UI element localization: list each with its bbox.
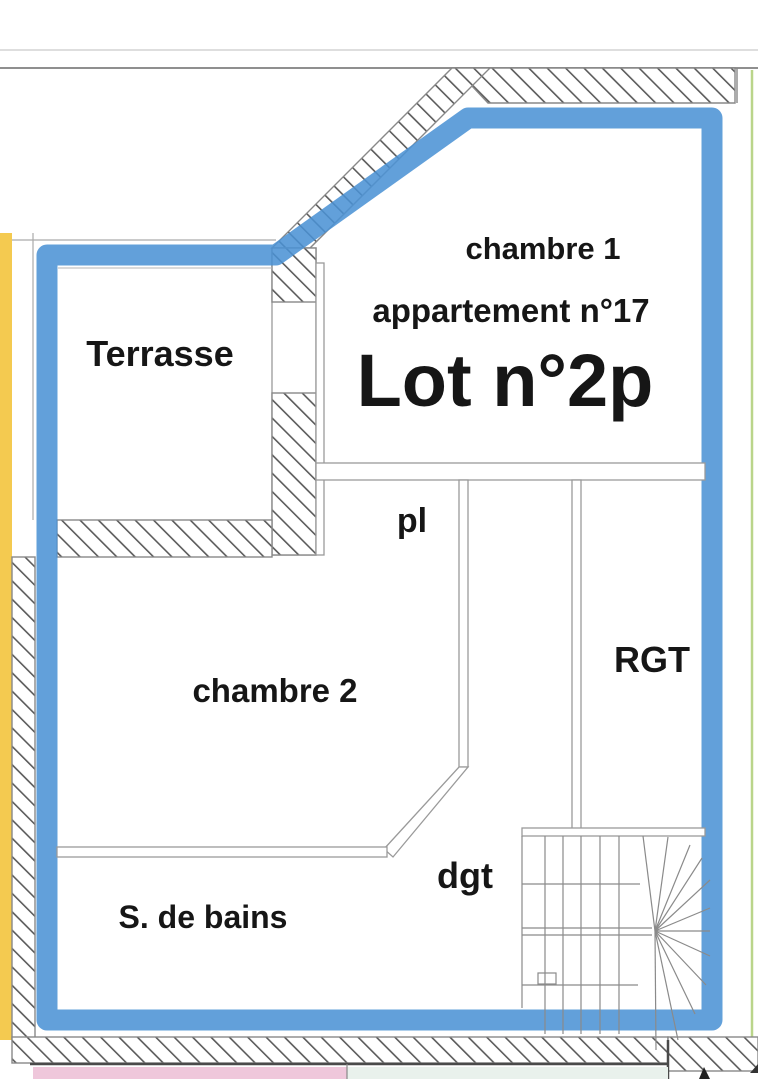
label-terrasse: Terrasse — [86, 333, 233, 374]
label-chambre-2: chambre 2 — [192, 672, 357, 709]
floor-plan-page: chambre 1 appartement n°17 Lot n°2p Terr… — [0, 0, 758, 1079]
label-lot: Lot n°2p — [357, 339, 654, 422]
partition-chambre1-west — [316, 263, 324, 555]
hatched-wall-bottom-right — [668, 1037, 758, 1071]
hatched-wall-top — [455, 68, 735, 103]
label-appartement: appartement n°17 — [372, 292, 649, 329]
label-rgt: RGT — [614, 639, 690, 680]
partition-sdebains-top — [57, 847, 387, 857]
partition-rgt-west — [572, 480, 581, 830]
floor-plan-svg: chambre 1 appartement n°17 Lot n°2p Terr… — [0, 0, 758, 1079]
yellow-strip — [0, 233, 12, 1040]
pink-strip — [33, 1067, 347, 1079]
hatched-wall-terrace-right-lower — [272, 393, 316, 555]
hatched-wall-left — [12, 557, 35, 1040]
label-dgt: dgt — [437, 855, 493, 896]
hatched-wall-bottom — [12, 1037, 668, 1063]
partition-corridor-west — [459, 480, 468, 767]
partition-stairs-top — [522, 828, 705, 836]
partition-horizontal-main — [316, 463, 705, 480]
hatched-wall-terrace-bottom — [57, 520, 272, 557]
label-chambre-1: chambre 1 — [465, 231, 620, 266]
label-s-de-bains: S. de bains — [119, 899, 288, 935]
label-pl: pl — [397, 502, 427, 540]
pale-green-strip — [347, 1067, 668, 1079]
